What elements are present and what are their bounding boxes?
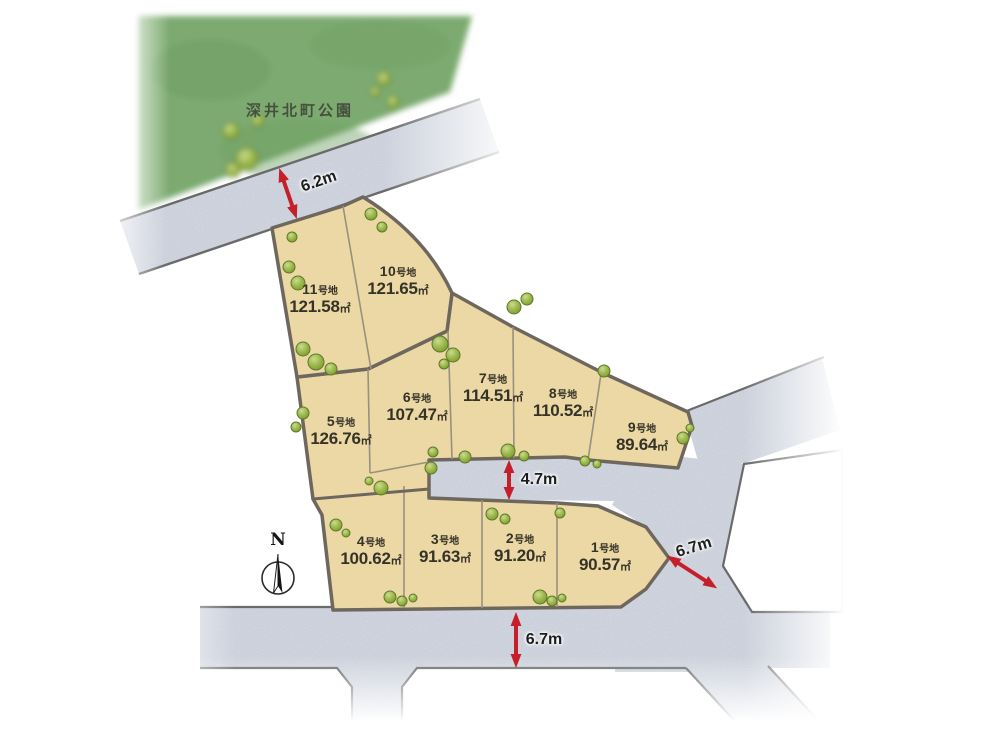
lot-label-1: 1号地 90.57㎡ — [579, 539, 631, 575]
site-plan-drawing — [0, 0, 1000, 729]
lot-label-4: 4号地 100.62㎡ — [340, 533, 401, 569]
lot-label-3: 3号地 91.63㎡ — [419, 531, 471, 567]
compass-rose — [262, 554, 294, 594]
park-label: 深井北町公園 — [246, 100, 354, 121]
lot-label-11: 11号地 121.58㎡ — [289, 281, 350, 317]
lot-label-6: 6号地 107.47㎡ — [386, 389, 447, 425]
lot-label-8: 8号地 110.52㎡ — [533, 385, 593, 421]
lot-subdivision-map: 深井北町公園 6.2m 4.7m 6.7m 6.7m N 1号地 90.57㎡ … — [0, 0, 1000, 729]
lot-label-2: 2号地 91.20㎡ — [494, 530, 546, 566]
south-road-width-label: 6.7m — [526, 631, 562, 649]
lot-label-7: 7号地 114.51㎡ — [463, 370, 523, 406]
lot-label-9: 9号地 89.64㎡ — [616, 419, 668, 455]
east-white-block — [723, 450, 842, 612]
compass-north-label: N — [270, 530, 286, 550]
lot-label-10: 10号地 121.65㎡ — [367, 263, 428, 299]
center-road-width-label: 4.7m — [521, 471, 557, 489]
lot-label-5: 5号地 126.76㎡ — [310, 413, 371, 449]
